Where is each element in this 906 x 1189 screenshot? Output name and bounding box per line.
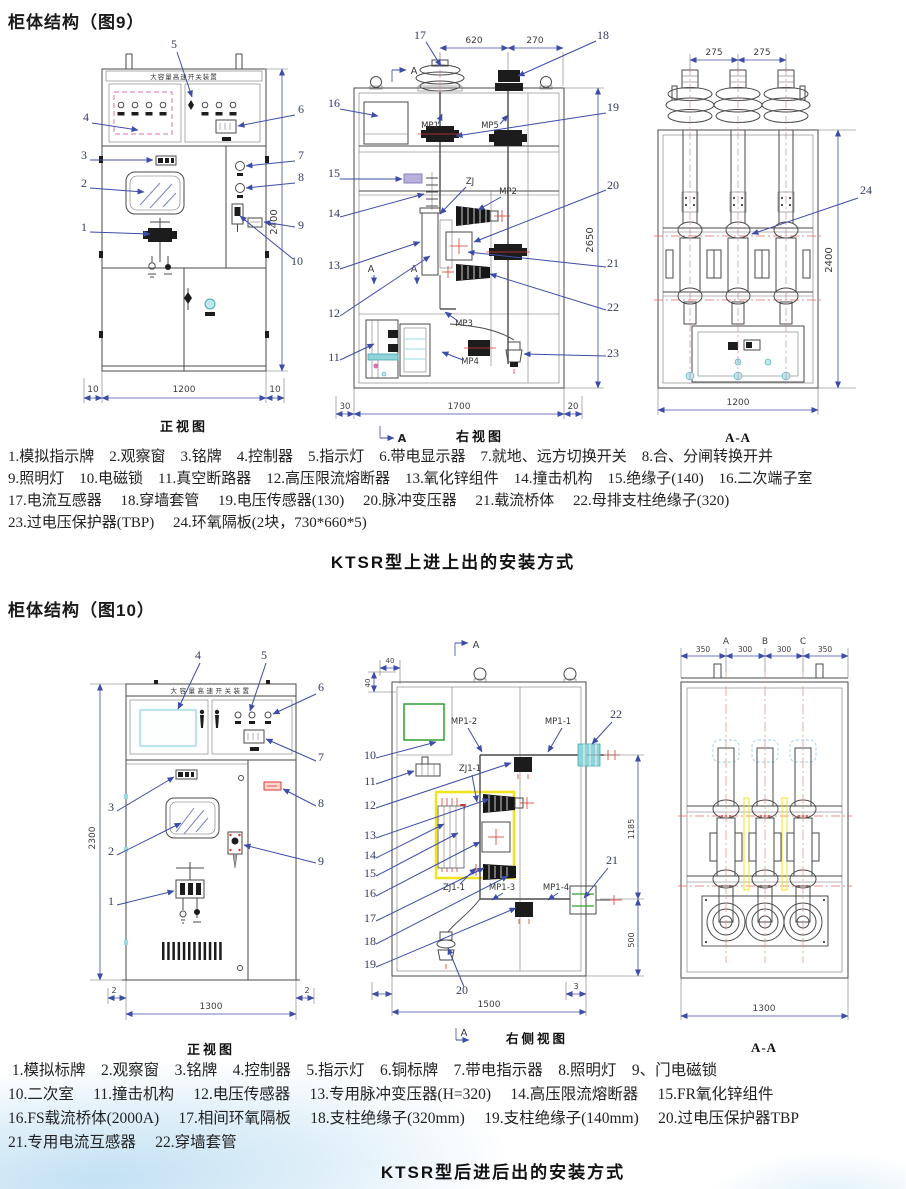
svg-text:7: 7 — [298, 148, 304, 162]
svg-text:11: 11 — [328, 350, 340, 364]
svg-text:MP1: MP1 — [421, 121, 439, 131]
view-title: 正视图 — [160, 419, 208, 434]
svg-text:300: 300 — [777, 645, 792, 654]
svg-text:3: 3 — [573, 982, 578, 991]
svg-text:13: 13 — [328, 258, 340, 272]
svg-text:MP1-2: MP1-2 — [451, 717, 477, 727]
ventilation-slots — [162, 942, 243, 971]
secondary-compartment — [364, 102, 408, 144]
svg-text:9: 9 — [318, 854, 324, 868]
svg-text:6: 6 — [318, 680, 324, 694]
fig9-parts-line-4: 23.过电压保护器(TBP) 24.环氧隔板(2块，730*660*5) — [8, 512, 900, 534]
svg-text:A: A — [723, 637, 730, 647]
fig10-front-view-drawing: 2300 大容量高速开关装置 — [78, 642, 350, 1062]
view-title: 正视图 — [187, 1042, 235, 1057]
svg-text:20: 20 — [607, 178, 619, 192]
svg-text:A: A — [411, 66, 418, 77]
svg-text:275: 275 — [753, 48, 770, 58]
fig9-caption: KTSR型上进上出的安装方式 — [0, 548, 906, 573]
section-title-fig10: 柜体结构（图10） — [8, 596, 155, 621]
svg-text:ZJ1-1: ZJ1-1 — [459, 764, 481, 774]
cabinet-banner-text: 大容量高速开关装置 — [171, 686, 252, 695]
svg-text:17: 17 — [364, 911, 376, 925]
svg-text:9: 9 — [298, 218, 304, 232]
svg-text:10: 10 — [269, 385, 281, 395]
fig9-front-view-drawing: 大容量高速开关装置 — [64, 26, 320, 440]
svg-text:1700: 1700 — [448, 402, 471, 412]
fig9-right-view-drawing: 620 270 A — [318, 24, 630, 444]
indicator-lights — [235, 712, 271, 751]
callout-24: 24 — [860, 183, 872, 197]
svg-text:A: A — [461, 1028, 468, 1039]
fig10-front-bottom-dims: 2 2 1300 — [108, 980, 314, 1020]
svg-text:ZJ: ZJ — [466, 177, 474, 187]
svg-text:6: 6 — [298, 102, 304, 116]
svg-text:8: 8 — [318, 796, 324, 810]
fig10-parts-line-4: 21.专用电流互感器 22.穿墙套管 — [8, 1132, 900, 1154]
svg-text:22: 22 — [610, 707, 622, 721]
svg-text:15: 15 — [364, 866, 376, 880]
fig9-aa-dims: 2400 1200 — [658, 130, 856, 415]
svg-text:300: 300 — [738, 645, 753, 654]
svg-text:1300: 1300 — [753, 1004, 776, 1014]
observation-window — [126, 172, 184, 214]
lower-cone-insulator — [442, 264, 490, 281]
svg-text:1300: 1300 — [200, 1002, 223, 1012]
svg-text:22: 22 — [607, 300, 619, 314]
door-bolt — [239, 776, 244, 781]
observation-window — [166, 798, 219, 838]
svg-text:40: 40 — [364, 679, 372, 688]
svg-text:2: 2 — [304, 986, 309, 995]
fig10-section-aa-drawing: A B C 350 300 300 350 — [656, 628, 906, 1072]
svg-text:2300: 2300 — [88, 826, 98, 849]
svg-text:4: 4 — [195, 648, 201, 662]
view-title: A-A — [725, 430, 751, 445]
svg-text:19: 19 — [364, 957, 376, 971]
fig9-section-aa-drawing: 275 275 — [642, 42, 906, 448]
svg-text:A: A — [368, 264, 375, 275]
nameplate — [156, 156, 176, 165]
svg-text:12: 12 — [328, 306, 340, 320]
svg-text:MP1-4: MP1-4 — [543, 883, 569, 893]
svg-text:10: 10 — [87, 385, 99, 395]
section-a-marker-top: A — [392, 66, 418, 82]
fig10-aa-bottom-dim: 1300 — [681, 978, 848, 1020]
svg-text:MP2: MP2 — [499, 187, 517, 197]
svg-text:2: 2 — [108, 844, 114, 858]
svg-text:7: 7 — [318, 750, 324, 764]
svg-text:620: 620 — [465, 36, 482, 46]
svg-text:A: A — [473, 640, 480, 651]
svg-text:3: 3 — [108, 800, 114, 814]
fig9-aa-poles — [666, 68, 810, 384]
svg-text:1500: 1500 — [478, 1000, 501, 1010]
upper-cone-insulator — [456, 206, 510, 226]
svg-text:19: 19 — [607, 100, 619, 114]
svg-text:C: C — [800, 637, 806, 647]
svg-text:2400: 2400 — [824, 247, 835, 272]
svg-text:23: 23 — [607, 346, 619, 360]
svg-text:270: 270 — [526, 36, 543, 46]
svg-text:21: 21 — [606, 853, 618, 867]
svg-text:500: 500 — [627, 932, 636, 947]
fig10-side-bottom-dims: 3 1500 — [372, 976, 586, 1016]
svg-text:1200: 1200 — [727, 398, 750, 408]
fig10-side-top-dims: 40 40 — [364, 657, 400, 692]
svg-text:MP1-3: MP1-3 — [489, 883, 515, 893]
fig9-front-dimensions: 10 1200 10 2400 — [84, 69, 288, 403]
svg-text:18: 18 — [597, 28, 609, 42]
top-terminal-block — [495, 70, 523, 91]
svg-text:17: 17 — [414, 28, 426, 42]
svg-text:10: 10 — [364, 748, 376, 762]
svg-text:20: 20 — [456, 983, 468, 997]
svg-text:A: A — [398, 432, 407, 445]
svg-text:2: 2 — [111, 986, 116, 995]
display-screen — [140, 710, 196, 746]
svg-text:21: 21 — [607, 256, 619, 270]
fig10-parts-line-1: 1.模拟标牌 2.观察窗 3.铭牌 4.控制器 5.指示灯 6.铜标牌 7.带电… — [8, 1060, 900, 1082]
svg-text:A: A — [411, 264, 418, 275]
svg-text:5: 5 — [171, 37, 177, 51]
svg-text:14: 14 — [364, 848, 376, 862]
svg-text:10: 10 — [291, 254, 303, 268]
svg-text:16: 16 — [364, 886, 376, 900]
svg-text:18: 18 — [364, 934, 376, 948]
svg-text:350: 350 — [818, 645, 833, 654]
svg-text:ZJ1-1: ZJ1-1 — [443, 883, 465, 893]
nameplate — [176, 770, 197, 779]
svg-text:3: 3 — [81, 148, 87, 162]
svg-text:4: 4 — [83, 110, 89, 124]
breaker-assembly — [470, 755, 534, 899]
view-title: 右视图 — [455, 429, 504, 444]
fig9-parts-line-1: 1.模拟指示牌 2.观察窗 3.铭牌 4.控制器 5.指示灯 6.带电显示器 7… — [8, 446, 900, 468]
fig10-caption: KTSR型后进后出的安装方式 — [100, 1158, 906, 1183]
svg-text:B: B — [762, 637, 768, 647]
svg-text:2: 2 — [81, 176, 87, 190]
svg-text:275: 275 — [705, 48, 722, 58]
fig10-front-left-dim: 2300 — [88, 684, 126, 980]
section-a-marker-bottom: A — [456, 1028, 469, 1040]
pulse-transformer-box — [446, 232, 472, 260]
mimic-diagram — [176, 862, 204, 923]
svg-text:1: 1 — [108, 894, 114, 908]
svg-text:11: 11 — [364, 774, 376, 788]
svg-text:40: 40 — [386, 657, 395, 665]
impact-mechanism — [416, 757, 440, 776]
fig10-aa-poles — [707, 668, 822, 963]
fig10-parts-line-3: 16.FS载流桥体(2000A) 17.相间环氧隔板 18.支柱绝缘子(320m… — [8, 1108, 900, 1130]
svg-text:2400: 2400 — [269, 209, 280, 234]
section-a-marker-bottom: A — [380, 426, 407, 445]
svg-text:14: 14 — [328, 206, 340, 220]
svg-text:8: 8 — [298, 170, 304, 184]
fig9-parts-line-2: 9.照明灯 10.电磁锁 11.真空断路器 12.高压限流熔断器 13.氧化锌组… — [8, 468, 900, 490]
view-title: A-A — [751, 1040, 777, 1055]
svg-text:5: 5 — [261, 648, 267, 662]
indicator-panel — [114, 92, 237, 141]
lower-doors — [184, 288, 215, 316]
svg-text:1185: 1185 — [627, 819, 636, 839]
section-a-marker-top: A — [455, 640, 480, 656]
svg-text:MP1-1: MP1-1 — [545, 717, 571, 727]
page: 柜体结构（图9） 大容量高速开关装置 — [0, 0, 906, 1189]
view-title: 右侧视图 — [505, 1031, 568, 1046]
svg-text:16: 16 — [328, 96, 340, 110]
copper-plate — [264, 782, 281, 790]
vacuum-breaker-assembly — [366, 320, 496, 378]
svg-text:12: 12 — [364, 798, 376, 812]
svg-text:1200: 1200 — [173, 385, 196, 395]
fig9-parts-line-3: 17.电流互感器 18.穿墙套管 19.电压传感器(130) 20.脉冲变压器 … — [8, 490, 900, 512]
svg-text:20: 20 — [568, 402, 579, 412]
svg-text:2650: 2650 — [585, 227, 596, 252]
svg-text:15: 15 — [328, 166, 340, 180]
svg-text:30: 30 — [340, 402, 351, 412]
svg-text:MP4: MP4 — [461, 357, 479, 367]
svg-text:1: 1 — [81, 220, 87, 234]
fig10-side-view-drawing: A 40 40 — [352, 616, 666, 1056]
secondary-room-window — [404, 704, 444, 740]
svg-text:350: 350 — [696, 645, 711, 654]
svg-text:13: 13 — [364, 828, 376, 842]
phase-labels: A B C — [723, 637, 806, 647]
door-handle — [228, 832, 242, 868]
top-bushing — [416, 54, 464, 96]
fig10-parts-line-2: 10.二次室 11.撞击机构 12.电压传感器 13.专用脉冲变压器(H=320… — [8, 1084, 900, 1106]
indicator-levers — [200, 710, 219, 728]
